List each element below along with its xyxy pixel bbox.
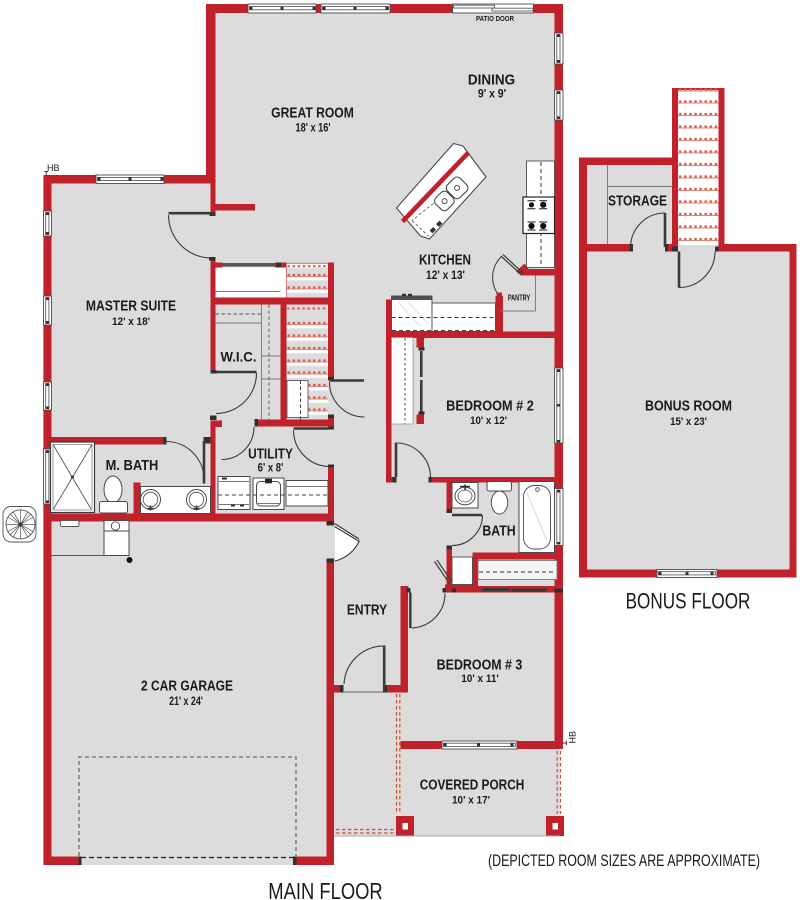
svg-text:10' x 17': 10' x 17' xyxy=(452,794,490,807)
svg-text:BONUS ROOM: BONUS ROOM xyxy=(645,397,732,413)
svg-text:18' x 16': 18' x 16' xyxy=(295,123,330,135)
svg-text:COVERED PORCH: COVERED PORCH xyxy=(420,776,525,793)
svg-text:GREAT ROOM: GREAT ROOM xyxy=(271,104,354,120)
svg-text:BEDROOM # 2: BEDROOM # 2 xyxy=(446,396,534,413)
svg-text:PANTRY: PANTRY xyxy=(508,295,531,303)
svg-text:12' x 13': 12' x 13' xyxy=(426,269,465,282)
svg-text:KITCHEN: KITCHEN xyxy=(419,251,471,268)
svg-text:PATIO DOOR: PATIO DOOR xyxy=(476,16,514,23)
svg-text:BATH: BATH xyxy=(482,522,515,538)
svg-text:MAIN FLOOR: MAIN FLOOR xyxy=(268,879,382,900)
svg-text:DINING: DINING xyxy=(468,72,515,89)
svg-text:STORAGE: STORAGE xyxy=(608,192,667,209)
svg-text:12' x 18': 12' x 18' xyxy=(112,315,150,328)
svg-text:9' x 9': 9' x 9' xyxy=(478,88,507,101)
svg-text:UTILITY: UTILITY xyxy=(248,445,293,462)
svg-text:10' x 12': 10' x 12' xyxy=(470,414,507,427)
svg-text:BONUS FLOOR: BONUS FLOOR xyxy=(626,590,751,615)
svg-text:M. BATH: M. BATH xyxy=(106,456,159,473)
svg-text:MASTER SUITE: MASTER SUITE xyxy=(86,297,176,313)
svg-text:21' x 24': 21' x 24' xyxy=(169,696,203,708)
svg-text:(DEPICTED ROOM SIZES ARE APPRO: (DEPICTED ROOM SIZES ARE APPROXIMATE) xyxy=(488,852,760,870)
svg-text:BEDROOM # 3: BEDROOM # 3 xyxy=(437,656,523,672)
svg-text:W.I.C.: W.I.C. xyxy=(220,349,256,364)
svg-text:15' x 23': 15' x 23' xyxy=(670,415,707,428)
svg-text:10' x 11': 10' x 11' xyxy=(461,672,499,685)
svg-text:HB: HB xyxy=(568,731,578,744)
svg-text:HB: HB xyxy=(47,163,60,173)
svg-text:6' x 8': 6' x 8' xyxy=(258,462,284,475)
svg-text:ENTRY: ENTRY xyxy=(347,601,387,618)
svg-text:2 CAR GARAGE: 2 CAR GARAGE xyxy=(141,677,233,694)
